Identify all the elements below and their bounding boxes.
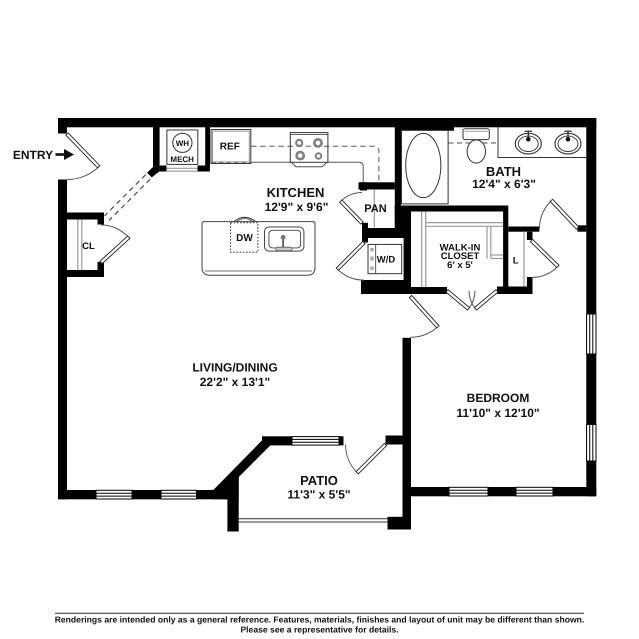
- svg-text:12'4" x 6'3": 12'4" x 6'3": [472, 177, 536, 191]
- svg-text:W/D: W/D: [377, 255, 396, 266]
- svg-text:PATIO: PATIO: [300, 473, 338, 488]
- svg-text:MECH: MECH: [170, 155, 194, 164]
- svg-text:LIVING/DINING: LIVING/DINING: [192, 361, 277, 375]
- svg-text:22'2" x 13'1": 22'2" x 13'1": [200, 375, 270, 389]
- svg-text:WH: WH: [176, 139, 190, 148]
- svg-text:BEDROOM: BEDROOM: [467, 391, 530, 405]
- svg-text:KITCHEN: KITCHEN: [267, 185, 325, 200]
- svg-text:PAN: PAN: [364, 203, 386, 215]
- svg-text:12'9" x 9'6": 12'9" x 9'6": [265, 200, 329, 214]
- svg-text:Please see a representative fo: Please see a representative for details.: [240, 624, 398, 634]
- svg-text:L: L: [513, 256, 519, 267]
- svg-text:CL: CL: [82, 241, 95, 252]
- svg-text:11'10" x 12'10": 11'10" x 12'10": [456, 406, 539, 420]
- svg-text:6' x 5': 6' x 5': [447, 260, 473, 271]
- svg-text:DW: DW: [236, 233, 253, 244]
- svg-text:REF: REF: [220, 142, 240, 153]
- svg-text:ENTRY: ENTRY: [13, 148, 53, 162]
- svg-text:Renderings are intended only a: Renderings are intended only as a genera…: [55, 614, 585, 624]
- svg-text:11'3" x 5'5": 11'3" x 5'5": [287, 488, 350, 502]
